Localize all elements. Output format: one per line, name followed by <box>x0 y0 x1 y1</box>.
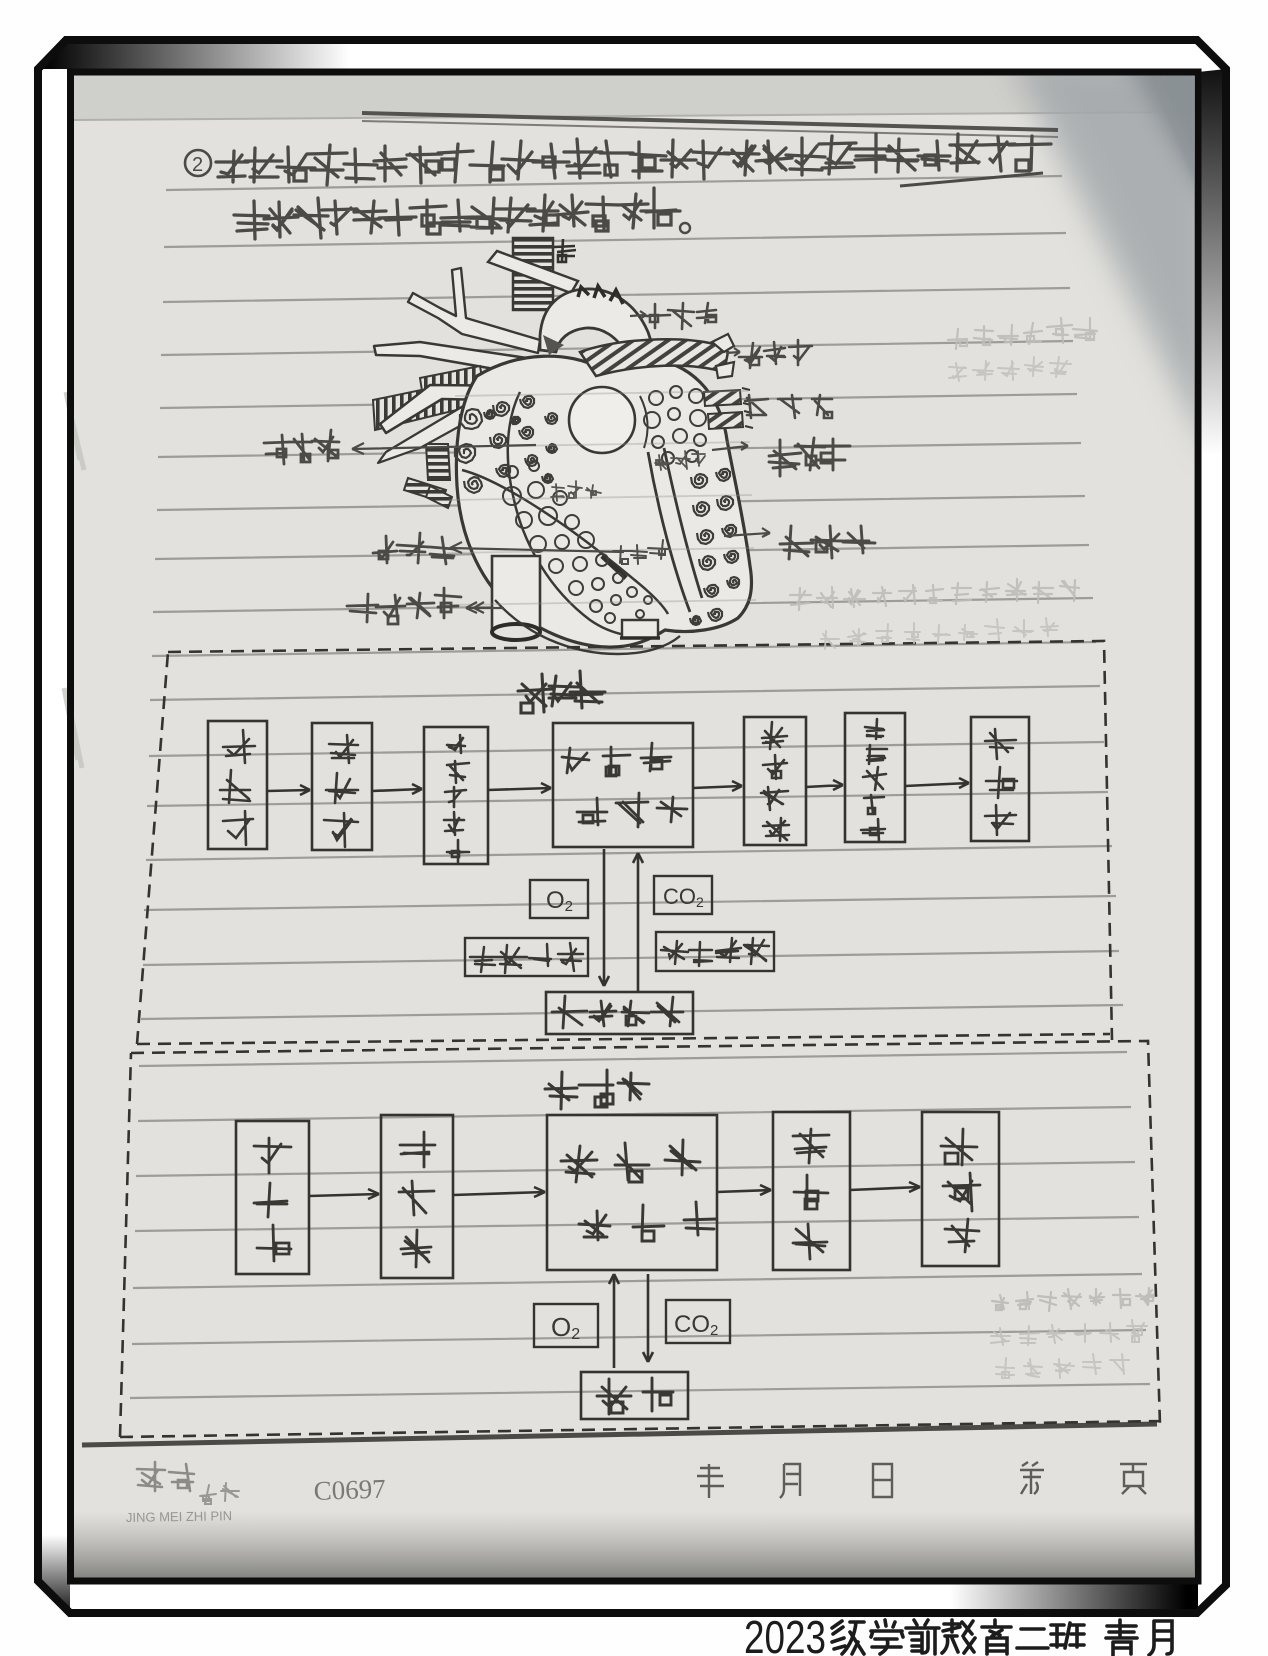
svg-text:JING MEI ZHI PIN: JING MEI ZHI PIN <box>126 1508 232 1525</box>
svg-text:2: 2 <box>192 154 203 176</box>
svg-text:C0697: C0697 <box>313 1474 386 1506</box>
svg-text:2023: 2023 <box>744 1611 826 1656</box>
